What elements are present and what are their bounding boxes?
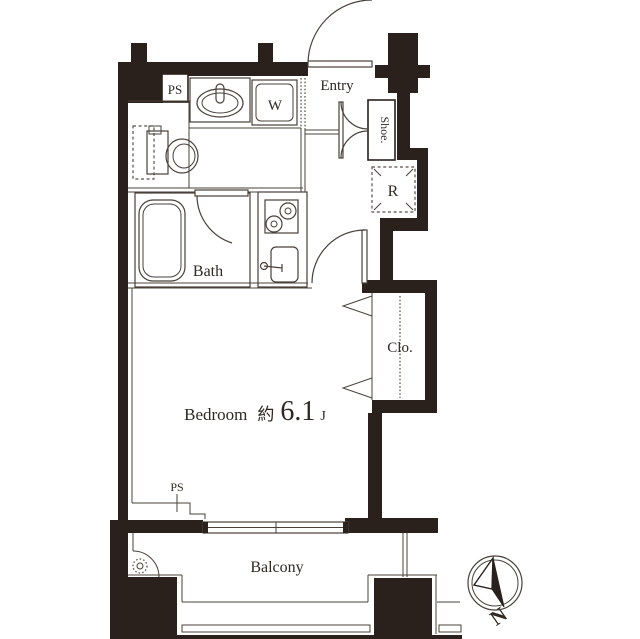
shoe-cabinet: Shoe. bbox=[339, 100, 395, 160]
shoe-cabinet-label: Shoe. bbox=[378, 117, 392, 144]
kitchen-sink bbox=[261, 247, 299, 282]
balcony-label: Balcony bbox=[250, 559, 303, 576]
bathtub bbox=[139, 200, 185, 281]
stove bbox=[265, 200, 298, 233]
closet: Clo. bbox=[343, 293, 413, 400]
floor-plan-page: Entry Shoe. R PS bbox=[0, 0, 640, 639]
bedroom-area-unit: J bbox=[320, 409, 326, 424]
pipe-space-bottom: PS bbox=[170, 480, 183, 512]
refrigerator-space: R bbox=[372, 167, 415, 212]
bath-label: Bath bbox=[193, 263, 223, 280]
entry-label: Entry bbox=[320, 78, 354, 94]
pipe-space-bottom-label: PS bbox=[170, 480, 183, 494]
pipe-space-top-label: PS bbox=[168, 82, 182, 97]
pipe-space-top: PS bbox=[162, 74, 188, 102]
refrigerator-label: R bbox=[388, 183, 399, 200]
floor-plan: Entry Shoe. R PS bbox=[0, 0, 640, 639]
vanity-sink bbox=[190, 78, 250, 122]
bedroom-approx: 約 bbox=[257, 405, 274, 424]
washing-machine: W bbox=[252, 80, 297, 125]
entry-door bbox=[308, 0, 372, 67]
bath-door bbox=[195, 190, 248, 243]
bedroom-name: Bedroom bbox=[184, 405, 247, 424]
kitchen bbox=[258, 192, 307, 287]
closet-label: Clo. bbox=[387, 340, 412, 356]
toilet bbox=[133, 126, 198, 179]
washing-machine-label: W bbox=[268, 98, 283, 114]
bedroom-door bbox=[312, 230, 367, 283]
bedroom-area: 6.1 bbox=[280, 396, 315, 427]
balcony-drain bbox=[133, 533, 159, 577]
bedroom-label: Bedroom 約 6.1 J bbox=[184, 396, 326, 427]
walls bbox=[110, 33, 462, 639]
bathroom: Bath bbox=[128, 188, 303, 287]
sliding-window bbox=[203, 522, 348, 533]
compass-icon: N bbox=[468, 556, 522, 630]
